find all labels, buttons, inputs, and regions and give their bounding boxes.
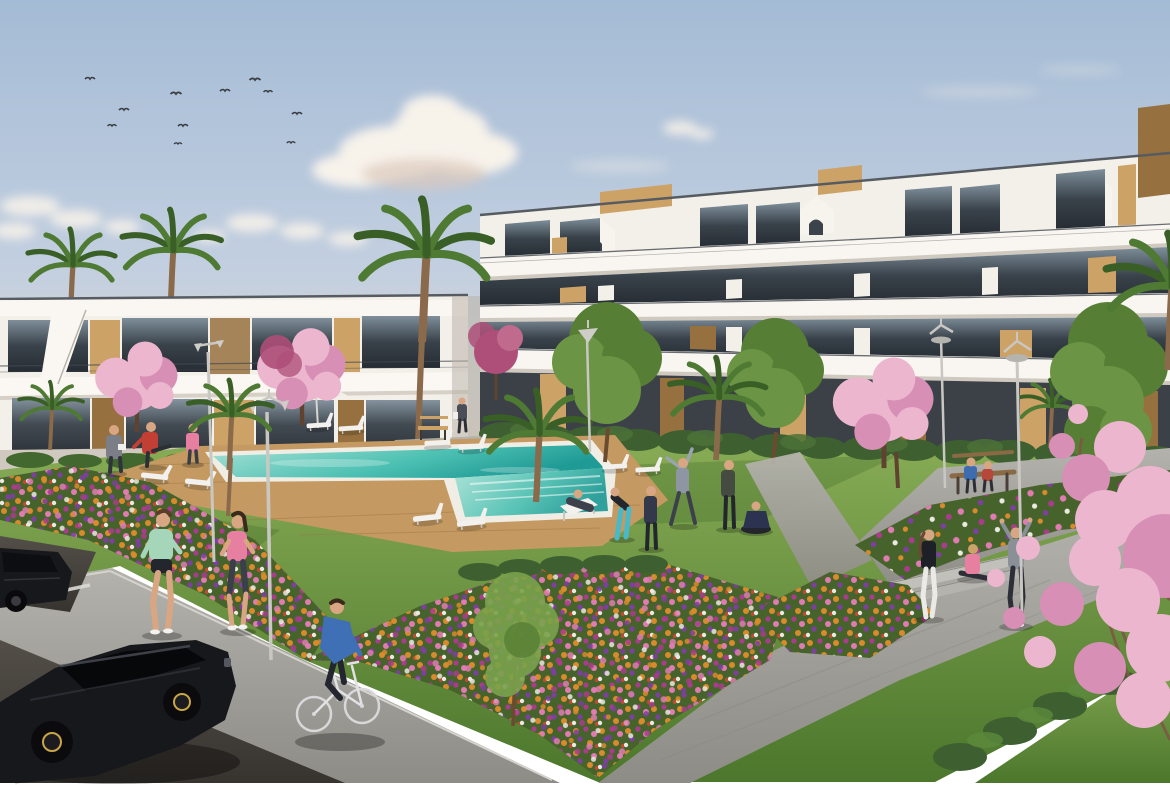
roof-timber-box bbox=[1138, 104, 1170, 198]
roof-timber-box bbox=[818, 165, 862, 195]
render-image bbox=[0, 0, 1170, 785]
scene-svg bbox=[0, 0, 1170, 785]
